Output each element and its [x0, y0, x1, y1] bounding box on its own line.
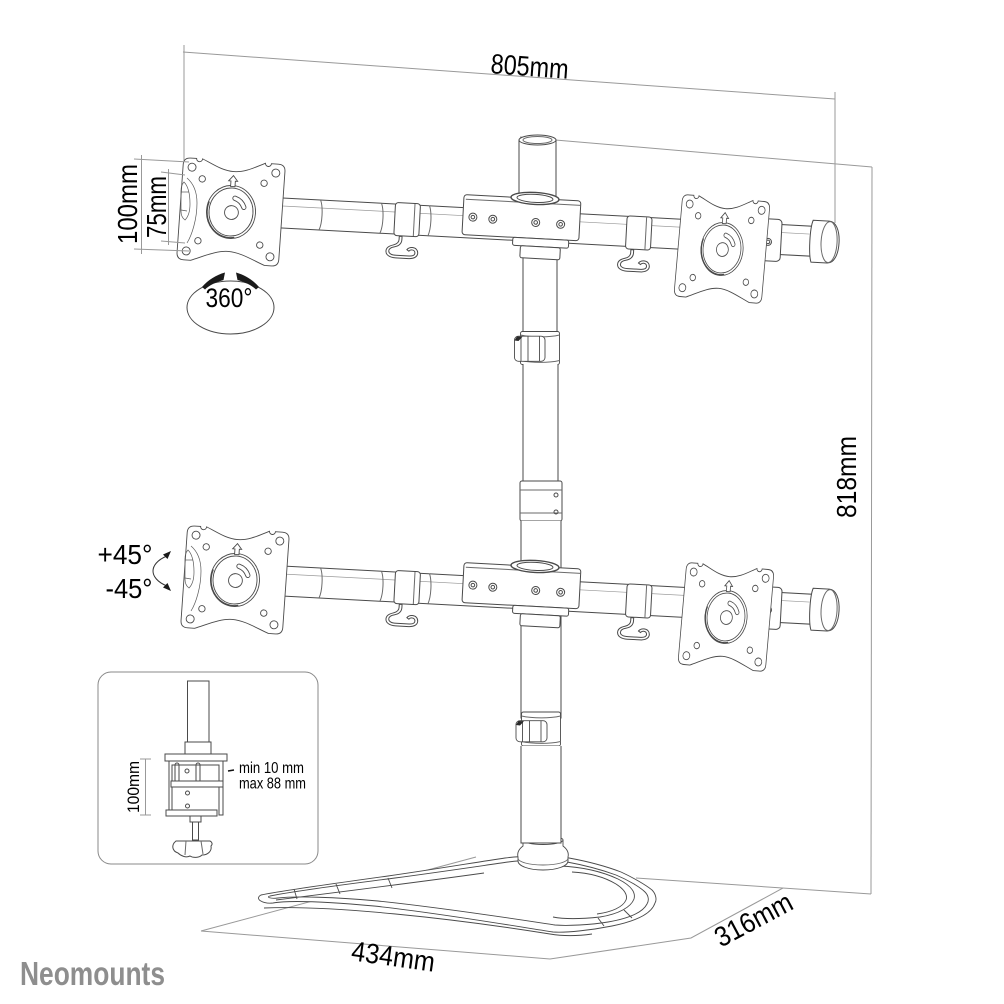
- svg-text:+45°: +45°: [98, 539, 153, 570]
- svg-text:100mm: 100mm: [124, 761, 143, 813]
- svg-text:-45°: -45°: [106, 573, 153, 604]
- svg-text:100mm: 100mm: [112, 164, 143, 244]
- svg-text:818mm: 818mm: [831, 436, 862, 518]
- svg-text:Neomounts: Neomounts: [20, 955, 165, 992]
- svg-text:805mm: 805mm: [490, 48, 570, 85]
- svg-text:max 88 mm: max 88 mm: [239, 776, 306, 793]
- svg-text:360°: 360°: [206, 283, 253, 313]
- svg-text:75mm: 75mm: [141, 176, 172, 238]
- svg-text:min 10 mm: min 10 mm: [239, 760, 304, 777]
